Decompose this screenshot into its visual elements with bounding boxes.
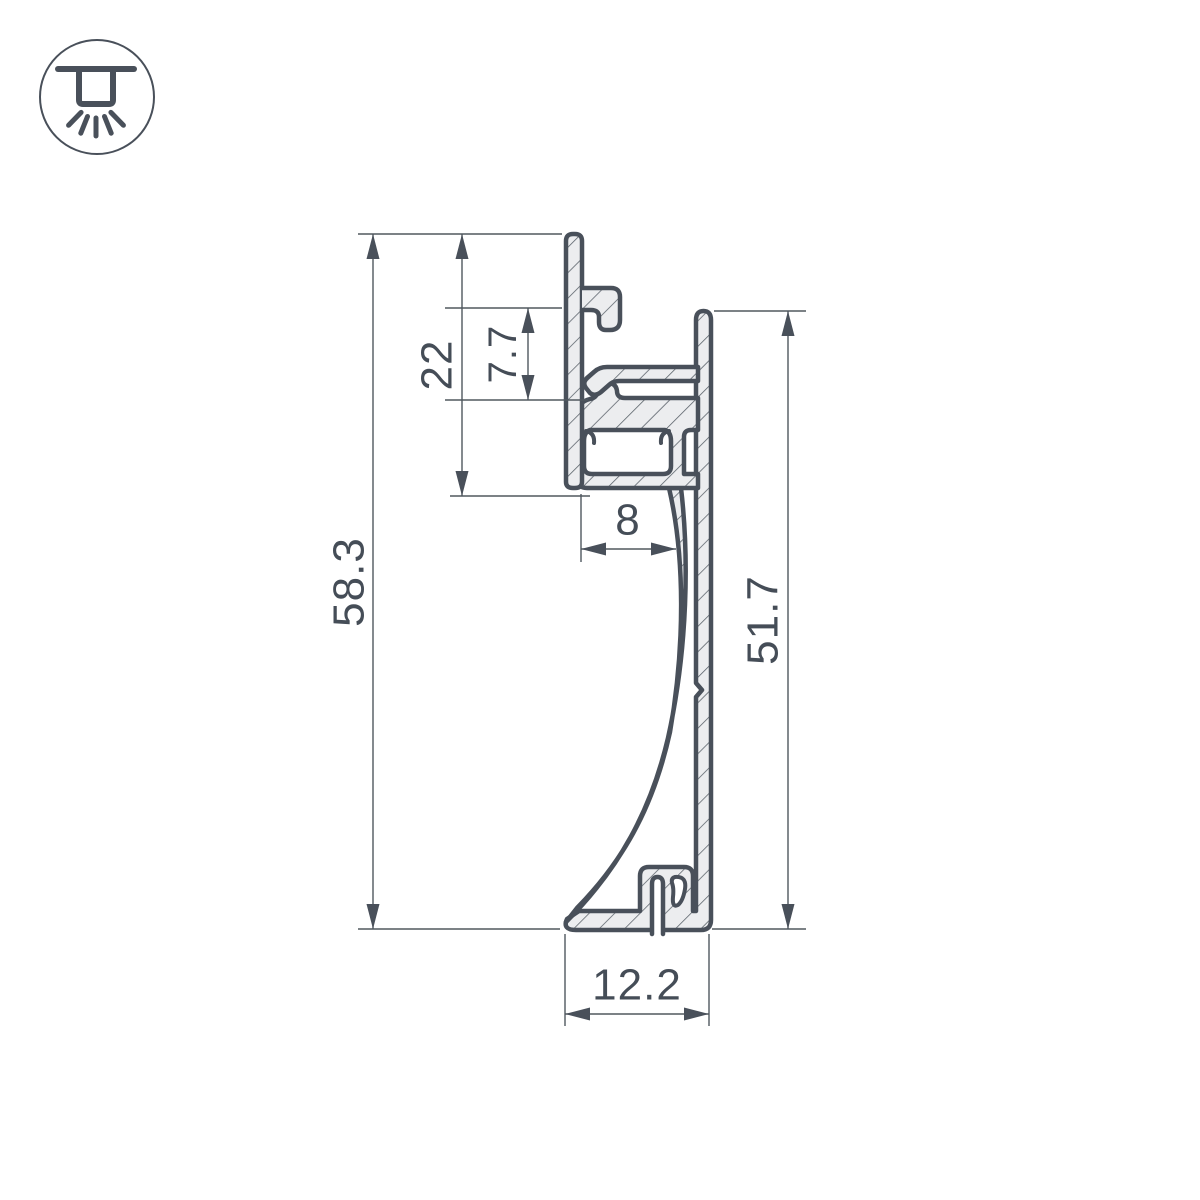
dim-label-total-height: 58.3 — [325, 537, 374, 627]
dim-label-base-width: 12.2 — [592, 961, 682, 1010]
profile-upper-strip-claw — [584, 367, 698, 395]
base-clip-slot — [652, 877, 663, 934]
dimension-labels: 58.3 22 7.7 51.7 8 12.2 — [325, 325, 788, 1010]
base-clip-hook-gap — [672, 877, 685, 906]
dim-label-led-channel-width: 8 — [615, 496, 640, 545]
profile-front-curved-wall — [566, 488, 686, 922]
profile-left-wall — [566, 234, 582, 488]
technical-drawing-canvas: 58.3 22 7.7 51.7 8 12.2 — [0, 0, 1200, 1200]
dim-label-body-height: 51.7 — [739, 575, 788, 665]
dim-label-hook-offset: 7.7 — [481, 325, 525, 384]
led-channel-cavity — [584, 430, 671, 474]
profile-hook-flange — [582, 288, 620, 330]
profile-cross-section — [566, 234, 711, 934]
recessed-downlight-icon — [40, 40, 154, 154]
dim-label-flange-height: 22 — [413, 340, 462, 391]
technical-drawing-page: 58.3 22 7.7 51.7 8 12.2 — [0, 0, 1200, 1200]
